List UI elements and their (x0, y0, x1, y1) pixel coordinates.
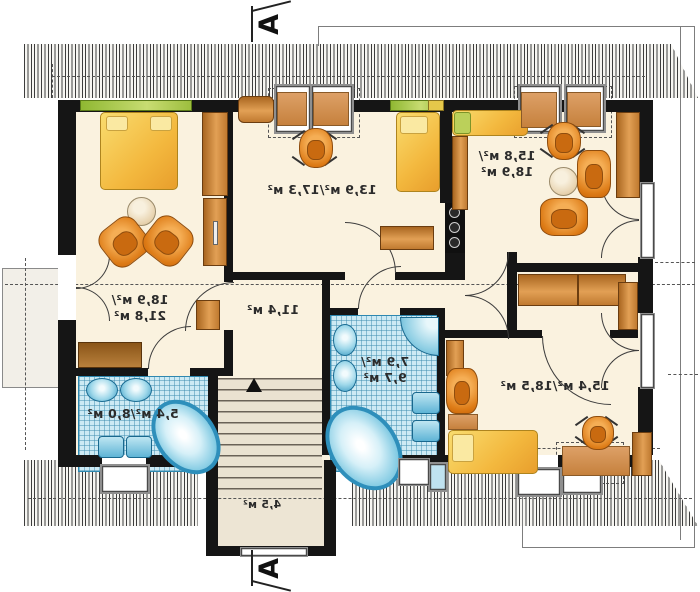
wall-vestibule (507, 252, 517, 338)
stairs-up-arrow-icon (246, 378, 262, 392)
terrace-edge-right-outer (694, 26, 695, 548)
wall-exterior-left-lower (58, 320, 76, 467)
toilet (412, 392, 440, 414)
low-dresser (380, 226, 434, 250)
pillow-icon (452, 434, 474, 462)
wall-room-middle-right (440, 105, 452, 203)
washbasin (120, 378, 152, 402)
office-chair (578, 414, 616, 450)
wall-exterior-right-b (638, 257, 653, 313)
terrace-edge-right-inner (680, 26, 681, 540)
side-table (448, 414, 478, 430)
balcony-door-gap (58, 255, 76, 320)
chair-body (547, 122, 581, 160)
small-cabinet (196, 300, 220, 330)
pillow-icon (400, 116, 428, 134)
seat (555, 133, 573, 152)
armchair (446, 368, 478, 414)
section-marker-bottom: A (253, 552, 285, 584)
terrace-edge-bottom (522, 547, 695, 548)
armchair (577, 150, 611, 198)
wall-room-br-top-b (517, 330, 542, 338)
desk (562, 446, 630, 476)
pillow-icon (106, 116, 128, 131)
section-letter: A (254, 558, 285, 579)
label-room-top-right: 15,8 м²/ 18,9 м² (462, 148, 552, 179)
label-bathroom-middle: 7,9 м²/ 9,7 м² (345, 354, 425, 385)
seat (150, 226, 183, 258)
label-hall: 11,4 м² (241, 302, 305, 318)
desk (277, 92, 307, 126)
area-line: 13,9 м²/17,3 м² (252, 182, 392, 198)
cooktop-icon (445, 203, 465, 253)
wardrobe (616, 112, 640, 198)
seat (551, 209, 577, 228)
toilet (98, 436, 124, 458)
chair-body (299, 128, 333, 168)
washbasin (333, 324, 357, 356)
area-line: 4,5 м² (230, 498, 294, 512)
pillow-icon (454, 112, 471, 134)
window-box-blue (428, 462, 448, 492)
burner-icon (449, 222, 460, 233)
stair-bay-wall-right (324, 460, 336, 548)
label-room-middle: 13,9 м²/17,3 м² (252, 182, 392, 198)
bidet (126, 436, 152, 458)
washing-machine (398, 458, 430, 486)
double-bed (100, 112, 178, 190)
stair-bay-wall-left (206, 460, 218, 548)
burner-icon (449, 237, 460, 248)
area-line: 15,8 м²/ (462, 148, 552, 164)
chair-body (582, 416, 614, 450)
area-line: 5,4 м²/8,0 м² (78, 406, 188, 422)
wall-bath-left-top-a (76, 368, 148, 376)
office-chair (295, 126, 335, 170)
area-line: 7,9 м²/ (345, 354, 425, 370)
bidet (412, 420, 440, 442)
wall-kitchenette-base (445, 253, 465, 280)
french-door-threshold-bottom (640, 313, 655, 389)
desk (313, 92, 349, 126)
corridor-cabinet (518, 274, 578, 306)
window-sill-yellow (428, 100, 444, 111)
wall-bath-left-top-b (190, 368, 233, 376)
area-line: 18,9 м²/ (90, 292, 190, 308)
single-bed (452, 110, 528, 136)
area-line: 11,4 м² (241, 302, 305, 318)
wall-exterior-left-upper (58, 100, 76, 255)
label-staircase: 4,5 м² (230, 498, 294, 512)
area-line: 9,7 м² (345, 370, 425, 386)
handle-icon (213, 221, 218, 245)
french-door-threshold-top (640, 182, 655, 259)
window-box-bath-left (100, 464, 150, 494)
section-letter: A (254, 14, 285, 35)
section-marker-top: A (253, 8, 285, 40)
roof-dash-top-end (52, 64, 53, 98)
floor-plan: 18,9 м²/ 21,8 м² 13,9 м²/17,3 м² 15,8 м²… (0, 0, 700, 592)
single-bed (448, 430, 538, 474)
terrace-edge-top-stub (318, 26, 319, 46)
balcony-left (2, 268, 60, 388)
low-cabinet (78, 342, 142, 368)
wall-exterior-right-a (638, 100, 653, 182)
single-bed (396, 112, 440, 192)
corridor-cabinet (618, 282, 638, 330)
seat (590, 426, 607, 443)
area-line: 18,9 м² (462, 164, 552, 180)
washbasin (86, 378, 118, 402)
dash-right-2 (668, 374, 698, 375)
wardrobe (202, 112, 228, 196)
stair-treads (218, 378, 322, 496)
seat (585, 164, 603, 189)
armchair (540, 198, 588, 236)
area-line: 21,8 м² (90, 308, 190, 324)
area-line: 15,4 м²/18,5 м² (493, 378, 617, 394)
sliding-door-wardrobe (203, 198, 227, 266)
terrace-edge-top (318, 26, 695, 27)
dresser (238, 96, 274, 123)
round-table (549, 167, 578, 196)
seat (454, 381, 471, 405)
seat (307, 140, 325, 161)
label-room-bottom-right: 15,4 м²/18,5 м² (493, 378, 617, 394)
wall-room-tr-bottom (517, 263, 638, 272)
window-sill-left (80, 100, 192, 111)
roof-dash-bottom (28, 498, 692, 499)
label-bedroom-left: 18,9 м²/ 21,8 м² (90, 292, 190, 323)
wall-bath-mid-top-a (322, 308, 358, 315)
slope-dash-left (25, 258, 26, 450)
roof-dash-top (52, 76, 645, 77)
label-bathroom-left: 5,4 м²/8,0 м² (78, 406, 188, 422)
dash-right-1 (655, 262, 695, 263)
wall-room-middle-bottom-a (233, 272, 345, 280)
wardrobe (632, 432, 652, 476)
seat (109, 227, 142, 259)
pillow-icon (150, 116, 172, 131)
